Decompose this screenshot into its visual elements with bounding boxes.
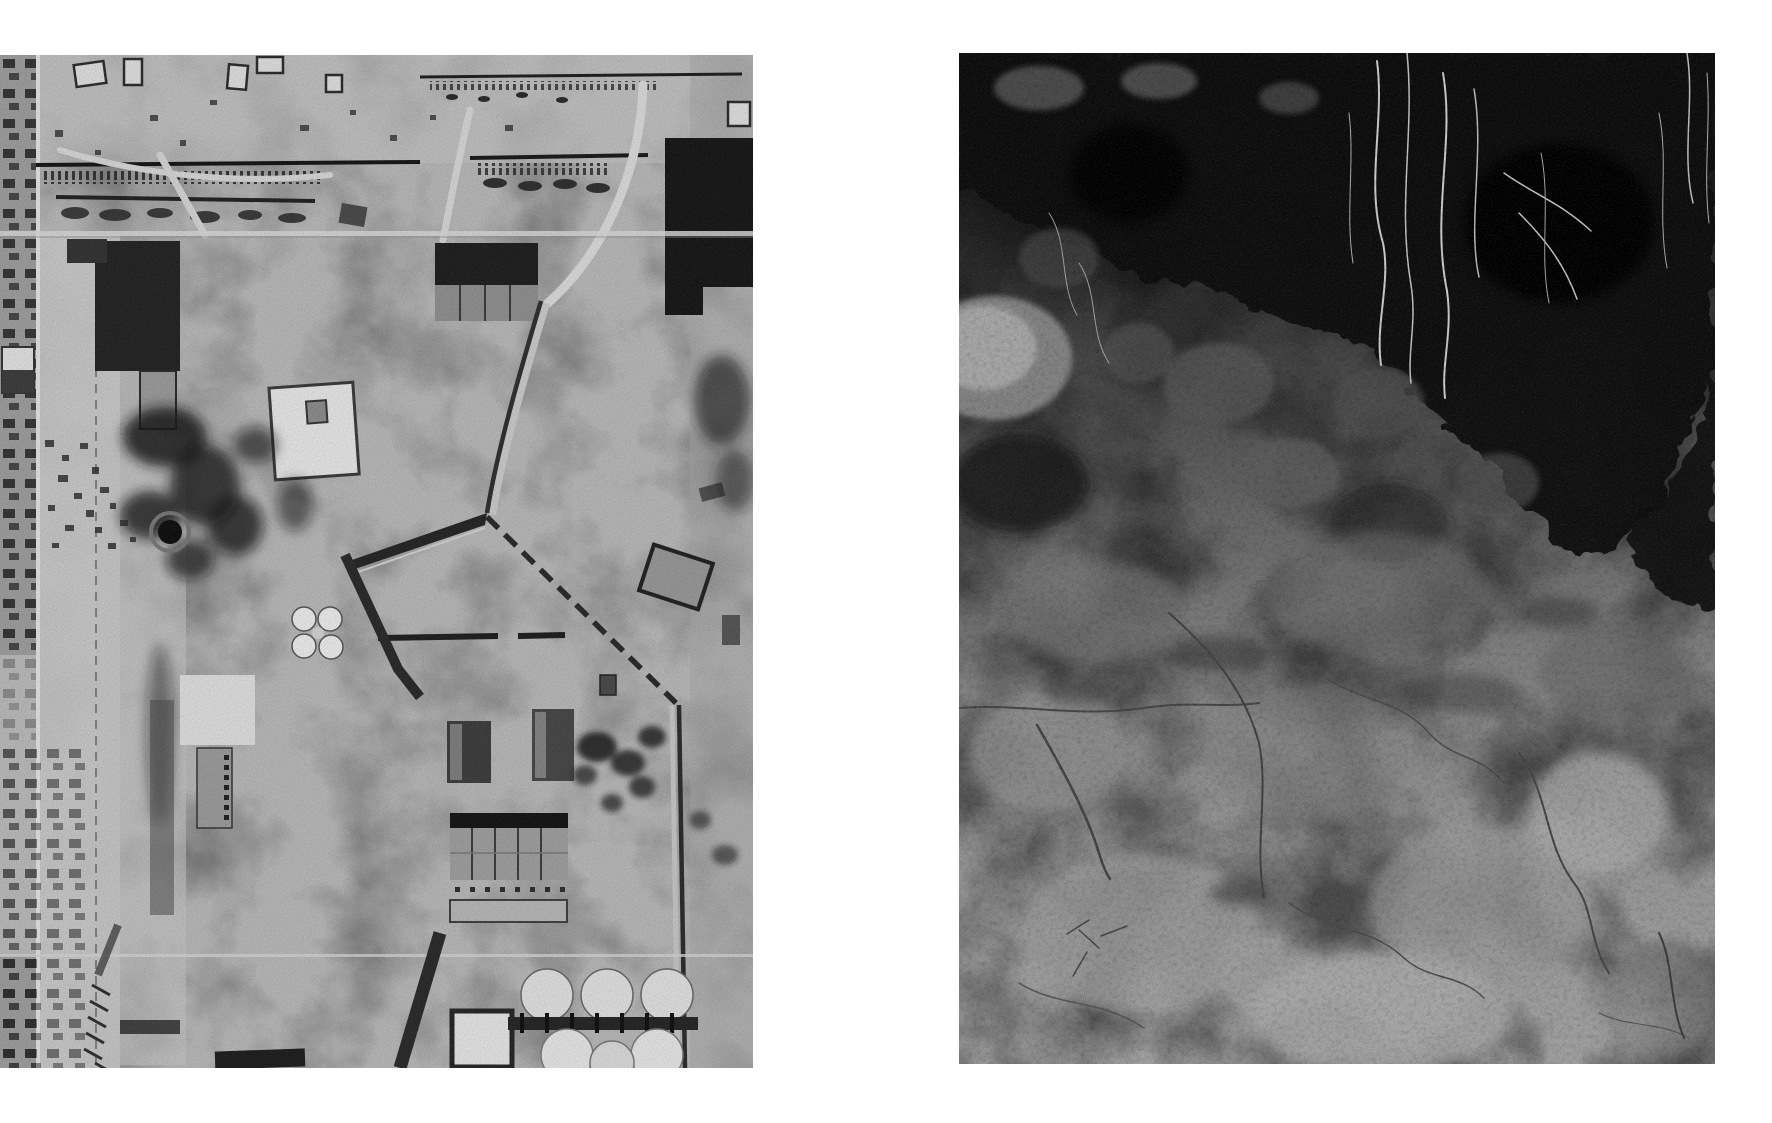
film-grain-left <box>0 55 753 1068</box>
soil-photo-rendering <box>959 53 1715 1064</box>
photo-spread <box>0 0 1772 1123</box>
film-grain-right <box>959 53 1715 1064</box>
soil-photo <box>959 53 1715 1064</box>
aerial-photo-rendering <box>0 55 753 1068</box>
aerial-photo <box>0 55 753 1068</box>
